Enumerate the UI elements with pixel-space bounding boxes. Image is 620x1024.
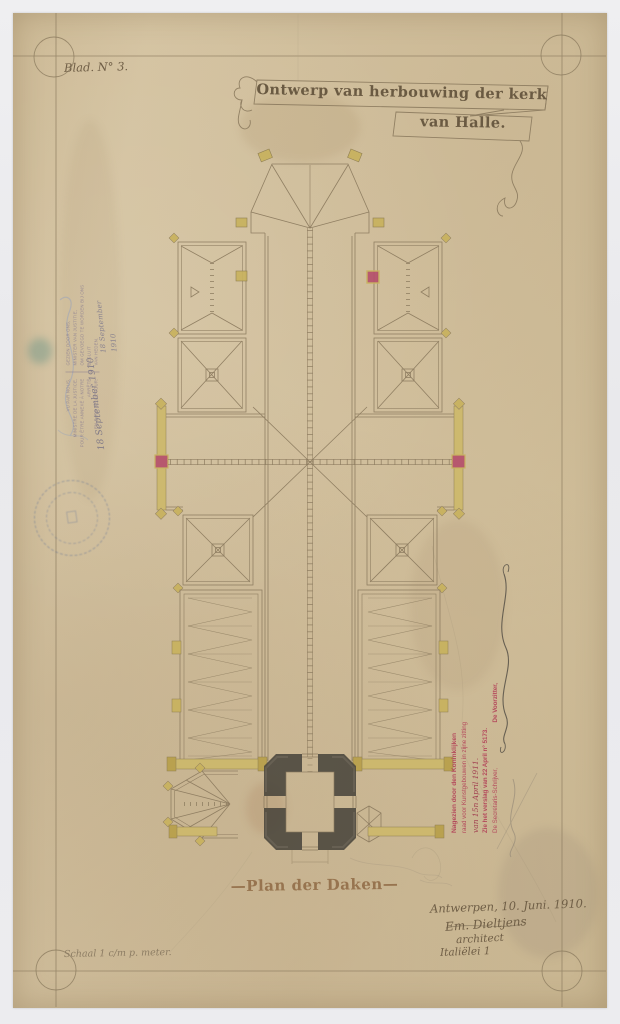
caption-plan-der-daken: —Plan der Daken—	[222, 875, 407, 896]
ministry-stamp-nl-line: GEZIEN DOOR ONS,	[66, 280, 73, 366]
approval-stamp-line4: Zie het verslag van 22 April n° 5173.	[481, 683, 491, 833]
wall-chimney-red	[367, 271, 379, 283]
choir-side-chapel	[169, 233, 246, 338]
title-line2: van Halle.	[394, 113, 532, 132]
tower-piers	[264, 754, 302, 850]
sheet-number-label: Blad. N° 3.	[64, 59, 128, 75]
hip-chapel-lower	[173, 506, 253, 593]
approval-stamp-date-handwritten: van 15n April 1911.	[470, 683, 482, 833]
transept-end-wall	[155, 398, 265, 519]
ministry-stamp-fr-line: VU PAR NOUS,	[66, 379, 73, 465]
west-wall-band	[167, 757, 267, 771]
scale-note: Schaal 1 c/m p. meter.	[64, 947, 172, 960]
royal-council-approval-stamp: Nagezien door den Koninklijken raad voor…	[450, 683, 514, 833]
hip-chapel-upper	[178, 338, 246, 412]
architect-role: architect	[456, 932, 504, 946]
wall-chimney-ochre	[236, 271, 247, 281]
ministry-stamp-nl-line: OM GEVOEGD TE WORDEN BIJ ONS BESLUIT	[79, 280, 93, 366]
crossing-hip-diagonals	[253, 407, 310, 517]
corner-registration-circles	[34, 35, 582, 991]
approval-stamp-line2: raad voor Kunstgebouwen in zijne zitting	[460, 683, 470, 833]
nave-ridge	[307, 165, 312, 773]
ministry-stamp-fr-line: MINISTRE DE LA JUSTICE,	[72, 379, 79, 465]
architect-address: Italiëlei 1	[440, 945, 491, 959]
stair-turret	[357, 806, 381, 842]
ministry-of-justice-stamp: VU PAR NOUS, MINISTRE DE LA JUSTICE, POU…	[66, 280, 136, 465]
aisle-sawtooth-roof	[172, 590, 262, 765]
ministry-stamp-nl-line: MINISTER VAN JUSTITIE,	[72, 280, 79, 366]
approval-stamp-president-label: De Voorzitter,	[491, 683, 501, 722]
lower-wall-bands	[169, 825, 444, 838]
church-plan-left-half	[155, 149, 310, 850]
blue-round-stamp-center-mark	[66, 510, 78, 523]
approval-stamp-line1: Nagezien door den Koninklijken	[450, 683, 460, 833]
approval-stamp-secretary-label: De Secretaris-Schrijver,	[491, 768, 501, 833]
